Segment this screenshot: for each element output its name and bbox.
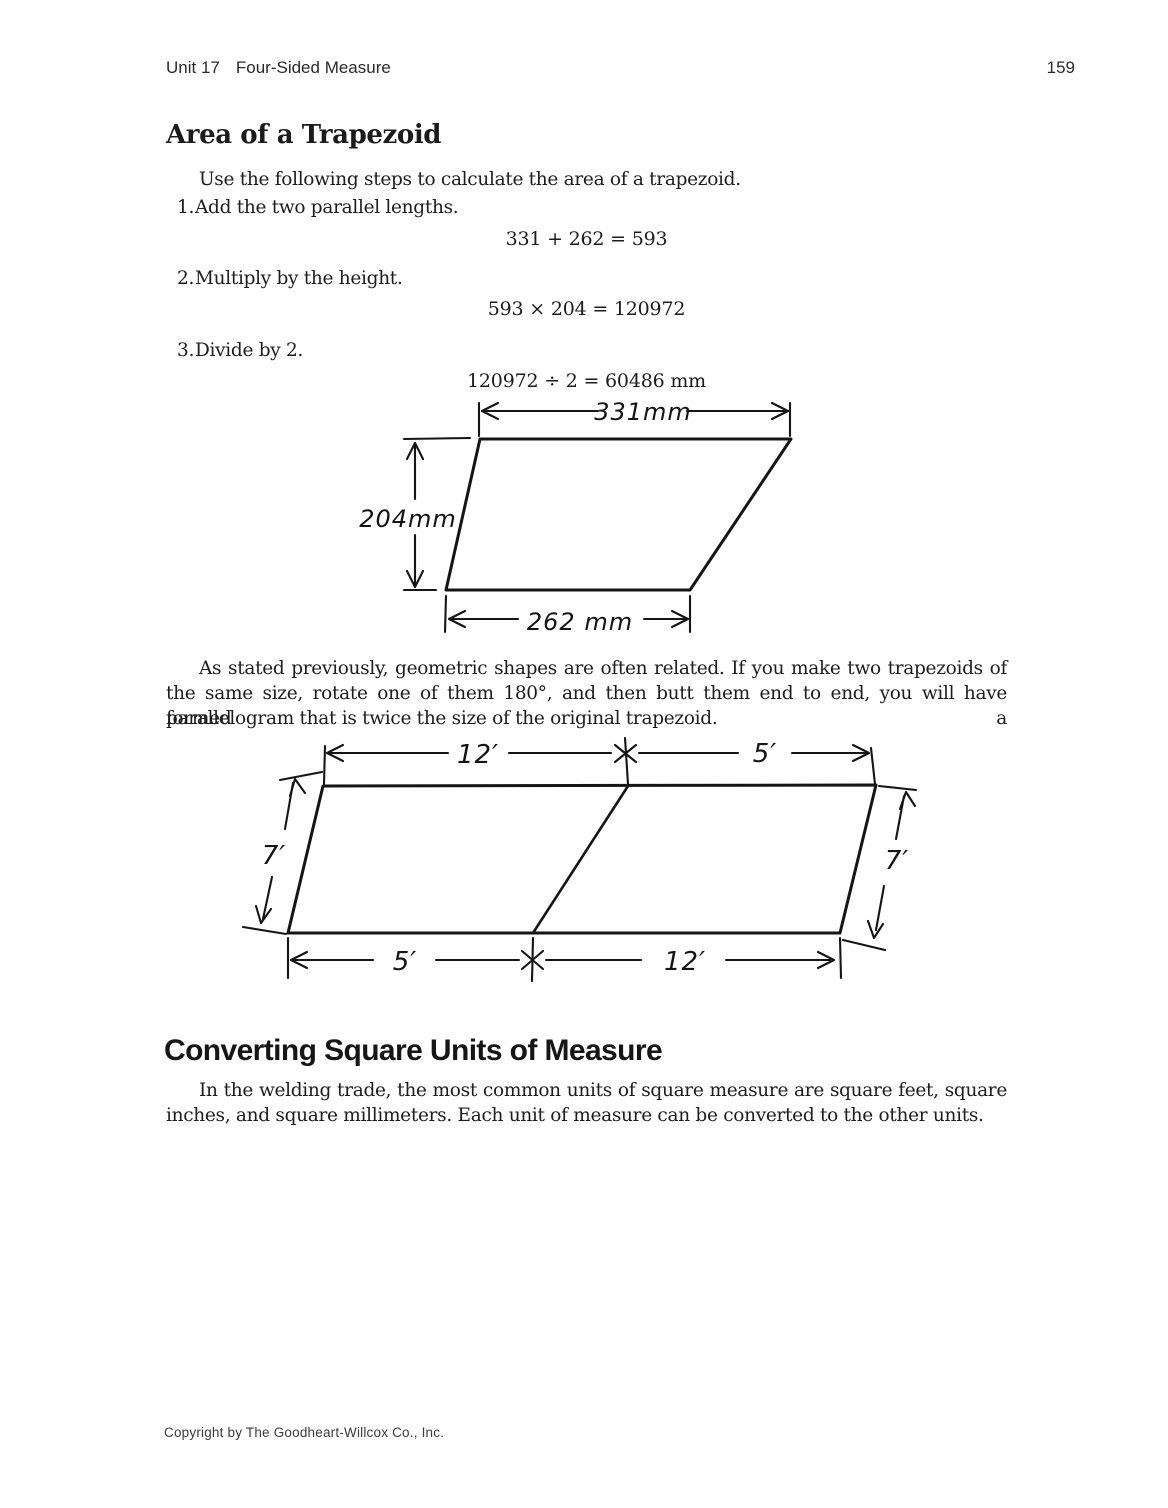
unit-label: Unit 17 xyxy=(166,58,220,77)
body-paragraph-line: In the welding trade, the most common un… xyxy=(166,1078,1007,1103)
intro-paragraph: Use the following steps to calculate the… xyxy=(166,167,1007,192)
page-number: 159 xyxy=(1047,58,1075,78)
dim-label-204mm: 204mm xyxy=(359,505,457,533)
textbook-page: Unit 17Four-Sided Measure 159 Area of a … xyxy=(0,0,1168,1508)
dim-label-top-12ft: 12′ xyxy=(457,740,499,770)
equation-add: 331 + 262 = 593 xyxy=(166,228,1007,250)
figure-trapezoid: 331mm 204mm 262 mm xyxy=(340,393,820,645)
equation-divide: 120972 ÷ 2 = 60486 mm xyxy=(166,370,1007,392)
step-number: 3. xyxy=(166,340,195,361)
unit-title: Four-Sided Measure xyxy=(236,58,391,77)
step-text: Divide by 2. xyxy=(195,340,303,361)
section-heading-converting-square-units: Converting Square Units of Measure xyxy=(164,1034,662,1068)
dim-label-right-7ft: 7′ xyxy=(885,846,909,876)
equation-multiply: 593 × 204 = 120972 xyxy=(166,298,1007,320)
dim-label-left-7ft: 7′ xyxy=(262,841,286,871)
dim-label-331mm: 331mm xyxy=(594,398,692,426)
list-item-step-2: 2.Multiply by the height. xyxy=(166,268,403,289)
step-text: Multiply by the height. xyxy=(195,268,403,289)
bottom-dimension xyxy=(288,938,841,981)
dim-label-262mm: 262 mm xyxy=(527,608,633,636)
body-paragraph-line: As stated previously, geometric shapes a… xyxy=(166,656,1007,681)
list-item-step-1: 1.Add the two parallel lengths. xyxy=(166,197,458,218)
step-number: 1. xyxy=(166,197,195,218)
page-header: Unit 17Four-Sided Measure 159 xyxy=(166,58,1075,78)
body-paragraph-line: inches, and square millimeters. Each uni… xyxy=(166,1103,1007,1128)
figure-parallelogram: 12′ 5′ 7′ 7′ xyxy=(178,733,993,1005)
step-text: Add the two parallel lengths. xyxy=(195,197,458,218)
list-item-step-3: 3.Divide by 2. xyxy=(166,340,303,361)
parallelogram-outline xyxy=(288,785,876,933)
running-title: Unit 17Four-Sided Measure xyxy=(166,58,391,78)
dim-label-top-5ft: 5′ xyxy=(753,739,777,769)
dim-label-bottom-5ft: 5′ xyxy=(393,947,417,977)
footer-copyright: Copyright by The Goodheart-Willcox Co., … xyxy=(164,1425,444,1440)
trapezoid-outline xyxy=(446,439,791,590)
section-heading-area-of-a-trapezoid: Area of a Trapezoid xyxy=(166,120,441,150)
dim-label-bottom-12ft: 12′ xyxy=(664,947,706,977)
top-dimension xyxy=(324,738,875,784)
trapezoid-join-line xyxy=(533,786,628,933)
step-number: 2. xyxy=(166,268,195,289)
body-paragraph-line: parallelogram that is twice the size of … xyxy=(166,706,1007,731)
